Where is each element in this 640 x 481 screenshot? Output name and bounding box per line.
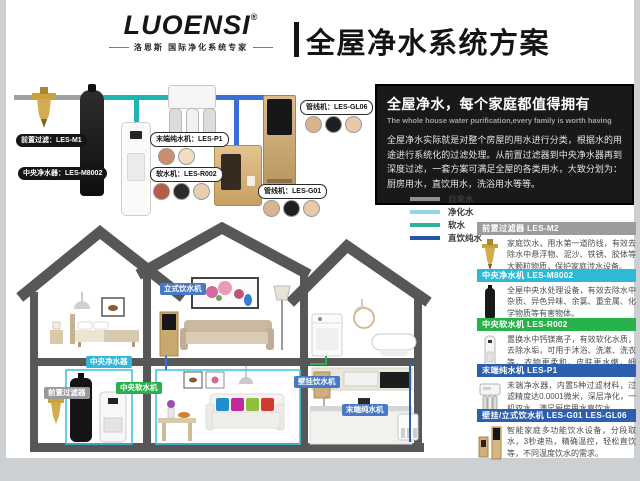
product-desc: 全屋中央水处理设备，有效去除水中杂质、异色异味、余氯、重金属、化学物质等有害物体…: [507, 285, 636, 321]
usage-icons-ro: [158, 148, 195, 165]
brand-logo-block: LUOENSI® 洛恩斯 国际净化系统专家: [90, 12, 292, 53]
fruit-bowl: [178, 412, 190, 418]
house-cutaway-illustration: [12, 222, 432, 462]
bubble-pipeline-stand: 管线机：LES-G01: [258, 184, 327, 199]
softener-feed-pipe: [134, 100, 139, 124]
legend-item-purified: 净化水: [410, 205, 482, 218]
bubble-prefilter: 前置过滤：LES-M1: [16, 134, 87, 147]
usage-icons-softener: [153, 183, 210, 200]
poster: LUOENSI® 洛恩斯 国际净化系统专家 全屋净水系统方案 全屋净水，每个家庭…: [0, 0, 640, 481]
product-header: 中央净水机 LES-M8002: [477, 269, 636, 282]
pillow-blue: [216, 398, 229, 411]
badge-central-softener: 中央软水机: [116, 382, 162, 394]
header-divider: [294, 22, 299, 57]
coffee-table: [158, 418, 196, 423]
pillow-red: [261, 398, 274, 411]
tap-water-line-icon: [410, 197, 440, 201]
product-header: 末端纯水机 LES-P1: [477, 364, 636, 377]
product-section-central-purifier: 中央净水机 LES-M8002 全屋中央水处理设备，有效去除水中杂质、异色异味、…: [477, 269, 636, 321]
wall-dispenser-cup: [247, 176, 255, 186]
hero-subtitle: The whole house water purification,every…: [387, 116, 622, 125]
bed-headboard: [70, 314, 75, 344]
usage-icons-pipeline-stand: [263, 200, 320, 217]
hero-body: 全屋净水实际就是对整个房屋的用水进行分类，根据水的用途进行系统化的过滤处理。从前…: [387, 133, 622, 191]
ro-housing: [168, 85, 216, 109]
blue-drop-ornament: [244, 294, 252, 306]
bubble-terminal-ro: 末端纯水机：LES-P1: [150, 132, 229, 147]
prefilter-product-image: [28, 85, 60, 131]
bubble-pipeline-wall: 管线机：LES-GL06: [300, 100, 373, 115]
product-desc: 智能家庭多功能饮水设备，分段取水，3秒速热，精确温控，轻松直饮等，不同温度饮水的…: [507, 425, 636, 461]
kitchen-counter: [310, 411, 412, 444]
hero-box: 全屋净水，每个家庭都值得拥有 The whole house water pur…: [375, 84, 634, 205]
dispensers-icon: [477, 425, 503, 461]
standing-dispenser-panel: [267, 99, 292, 135]
product-header: 中央软水机 LES-R002: [477, 318, 636, 331]
hero-title: 全屋净水，每个家庭都值得拥有: [387, 94, 622, 114]
floor-lamp-shade: [274, 286, 290, 300]
product-header: 前置过滤器 LES-M2: [477, 222, 636, 235]
standing-dispenser-product-image: [263, 95, 296, 186]
standing-dispenser-base: [267, 179, 292, 183]
pillow-green: [246, 398, 259, 411]
bathtub: [372, 334, 416, 350]
wall-panel-feed-pipe: [234, 100, 239, 147]
badge-prefilter: 前置过滤器: [44, 387, 90, 399]
brand-logo-text: LUOENSI: [124, 10, 251, 40]
nightstand: [50, 330, 63, 344]
badge-terminal-ro: 末端纯水机: [342, 404, 388, 416]
sofa-top: [184, 320, 272, 334]
range-hood: [344, 372, 378, 386]
softener-screen: [130, 131, 142, 139]
badge-wall-dispenser: 壁挂饮水机: [294, 376, 340, 388]
badge-standing-dispenser: 立式饮水机: [160, 283, 206, 295]
bubble-softener: 软水机：LES-R002: [150, 167, 223, 182]
central-purifier-cap: [88, 84, 96, 92]
registered-mark: ®: [251, 12, 259, 22]
built-in-oven: [380, 372, 410, 388]
brand-tagline: 洛恩斯 国际净化系统专家: [90, 42, 292, 53]
vase-flowers: [167, 400, 175, 408]
table-lamp: [53, 322, 60, 329]
round-mirror: [354, 308, 374, 328]
legend-item-tap: 自来水: [410, 192, 482, 205]
pillow-magenta: [231, 398, 244, 411]
wall-dispenser-panel: [221, 154, 241, 190]
purified-water-line-icon: [410, 210, 440, 214]
badge-central-purifier: 中央净水器: [86, 356, 132, 368]
product-section-prefilter: 前置过滤器 LES-M2 家庭饮水，用水第一道防线，有效去除水中悬浮物、泥沙、铁…: [477, 222, 636, 274]
softener-slot: [127, 153, 145, 181]
brand-logo: LUOENSI®: [90, 12, 292, 39]
page-title: 全屋净水系统方案: [306, 20, 550, 62]
product-section-dispensers: 壁挂/立式饮水机 LES-G01 LES-GL06 智能家庭多功能饮水设备，分段…: [477, 409, 636, 461]
softener-product-image: [121, 122, 151, 216]
product-header: 壁挂/立式饮水机 LES-G01 LES-GL06: [477, 409, 636, 422]
central-purifier-icon: [477, 285, 503, 321]
bubble-central-purifier: 中央净水器：LES-M8002: [18, 167, 107, 180]
usage-icons-pipeline-wall: [305, 116, 362, 133]
